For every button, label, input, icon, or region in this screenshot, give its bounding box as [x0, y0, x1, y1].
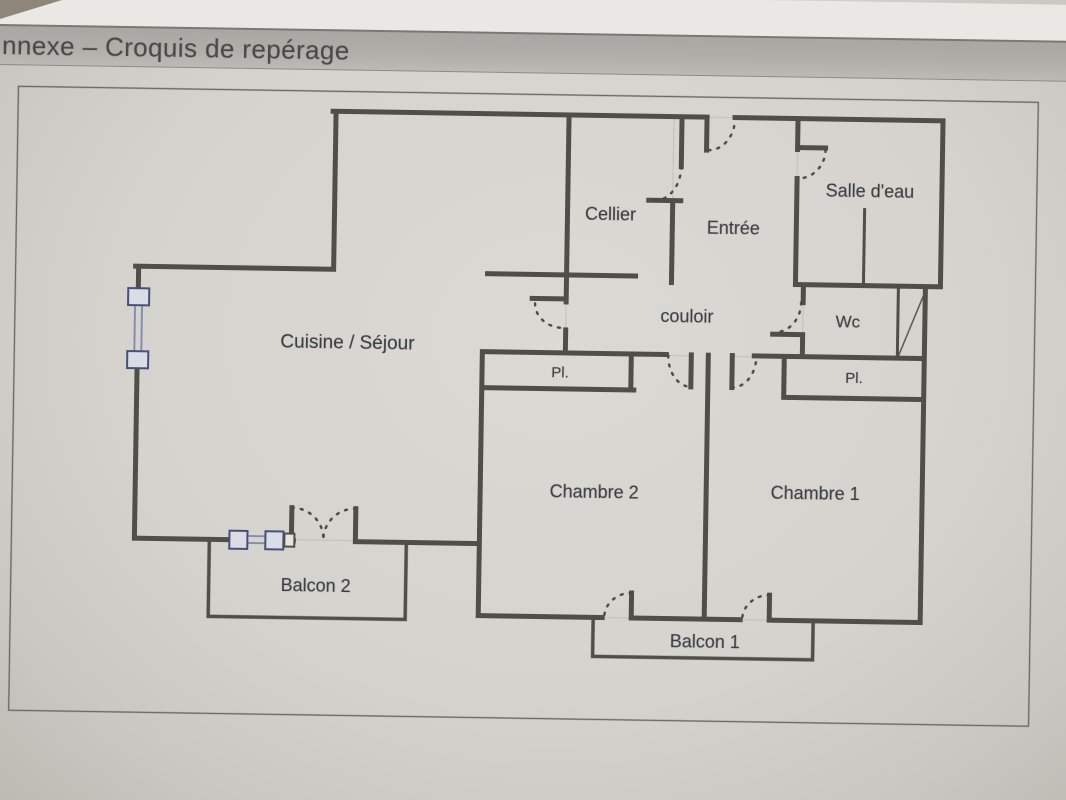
room-label-cuisine-sejour: Cuisine / Séjour [280, 331, 414, 355]
room-label-couloir: couloir [660, 306, 713, 328]
room-label-entree: Entrée [707, 218, 760, 240]
document-page: nnexe – Croquis de repérage [0, 0, 1066, 800]
room-label-placard-chambre-2: Pl. [551, 364, 569, 381]
room-label-balcon-1: Balcon 1 [670, 631, 740, 653]
room-label-balcon-2: Balcon 2 [280, 575, 350, 597]
walls [130, 108, 943, 623]
room-label-wc: Wc [835, 312, 860, 332]
room-label-salle-deau: Salle d'eau [825, 180, 914, 202]
scanned-document-photo: nnexe – Croquis de repérage [0, 0, 1066, 800]
left-wall-window [127, 288, 149, 368]
room-label-cellier: Cellier [585, 204, 636, 226]
kitchen-window [229, 531, 294, 550]
room-label-placard-chambre-1: Pl. [845, 370, 863, 387]
room-label-chambre-1: Chambre 1 [770, 483, 859, 505]
floor-plan-drawing [0, 0, 1066, 800]
room-label-chambre-2: Chambre 2 [549, 481, 638, 503]
